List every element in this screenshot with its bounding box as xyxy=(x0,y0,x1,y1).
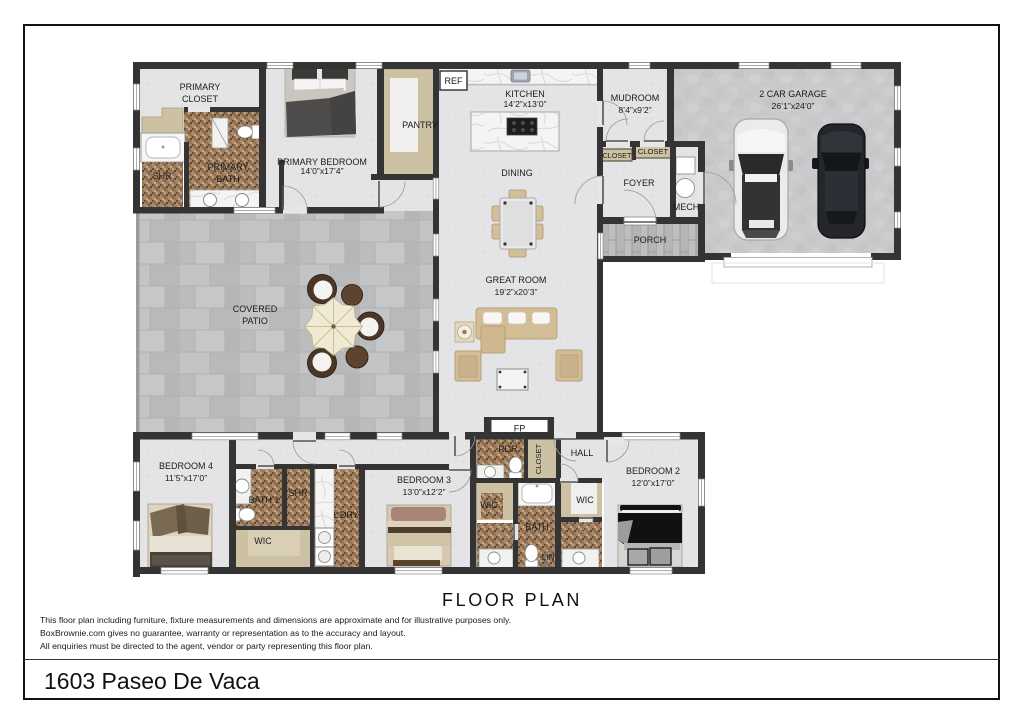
svg-text:2 CAR GARAGE: 2 CAR GARAGE xyxy=(759,89,827,99)
svg-text:PRIMARY: PRIMARY xyxy=(180,82,221,92)
svg-text:CLOSET: CLOSET xyxy=(534,443,543,474)
svg-text:14’2”x13’0”: 14’2”x13’0” xyxy=(504,99,547,109)
svg-text:HALL: HALL xyxy=(571,448,594,458)
svg-text:GREAT ROOM: GREAT ROOM xyxy=(486,275,547,285)
svg-text:WIC: WIC xyxy=(576,495,594,505)
svg-text:REF: REF xyxy=(445,76,464,86)
svg-text:19’2”x20’3”: 19’2”x20’3” xyxy=(495,287,538,297)
svg-text:CLOSET: CLOSET xyxy=(603,151,632,160)
svg-text:WIC: WIC xyxy=(480,500,498,510)
svg-text:BATH: BATH xyxy=(216,174,239,184)
svg-text:COVERED: COVERED xyxy=(233,304,278,314)
svg-text:L’DRY: L’DRY xyxy=(333,510,358,520)
svg-text:PANTRY: PANTRY xyxy=(402,120,438,130)
svg-text:FOYER: FOYER xyxy=(623,178,655,188)
svg-text:14’0”x17’4”: 14’0”x17’4” xyxy=(301,166,344,176)
svg-text:BATH: BATH xyxy=(525,522,548,532)
svg-text:26’1”x24’0”: 26’1”x24’0” xyxy=(772,101,815,111)
svg-text:MECH: MECH xyxy=(673,202,700,212)
svg-text:PATIO: PATIO xyxy=(242,316,268,326)
svg-text:PORCH: PORCH xyxy=(634,235,667,245)
svg-text:CLOSET: CLOSET xyxy=(638,147,669,156)
svg-text:MUDROOM: MUDROOM xyxy=(611,93,660,103)
svg-text:PDR: PDR xyxy=(498,444,518,454)
svg-text:DINING: DINING xyxy=(501,168,533,178)
svg-text:CLOSET: CLOSET xyxy=(182,94,219,104)
svg-text:8’4”x9’2”: 8’4”x9’2” xyxy=(618,105,651,115)
svg-text:12’0”x17’0”: 12’0”x17’0” xyxy=(632,478,675,488)
svg-text:PRIMARY: PRIMARY xyxy=(208,162,249,172)
svg-text:11’5”x17’0”: 11’5”x17’0” xyxy=(165,473,207,483)
svg-text:BEDROOM 4: BEDROOM 4 xyxy=(159,461,213,471)
svg-text:KITCHEN: KITCHEN xyxy=(505,89,545,99)
svg-text:13’0”x12’2”: 13’0”x12’2” xyxy=(403,487,446,497)
svg-text:BATH 1: BATH 1 xyxy=(249,495,280,505)
svg-text:SHR: SHR xyxy=(288,488,308,498)
svg-text:BEDROOM 2: BEDROOM 2 xyxy=(626,466,680,476)
svg-text:LIN: LIN xyxy=(542,553,555,562)
svg-text:BEDROOM 3: BEDROOM 3 xyxy=(397,475,451,485)
svg-text:SHR: SHR xyxy=(152,171,172,181)
svg-text:WIC: WIC xyxy=(254,536,272,546)
